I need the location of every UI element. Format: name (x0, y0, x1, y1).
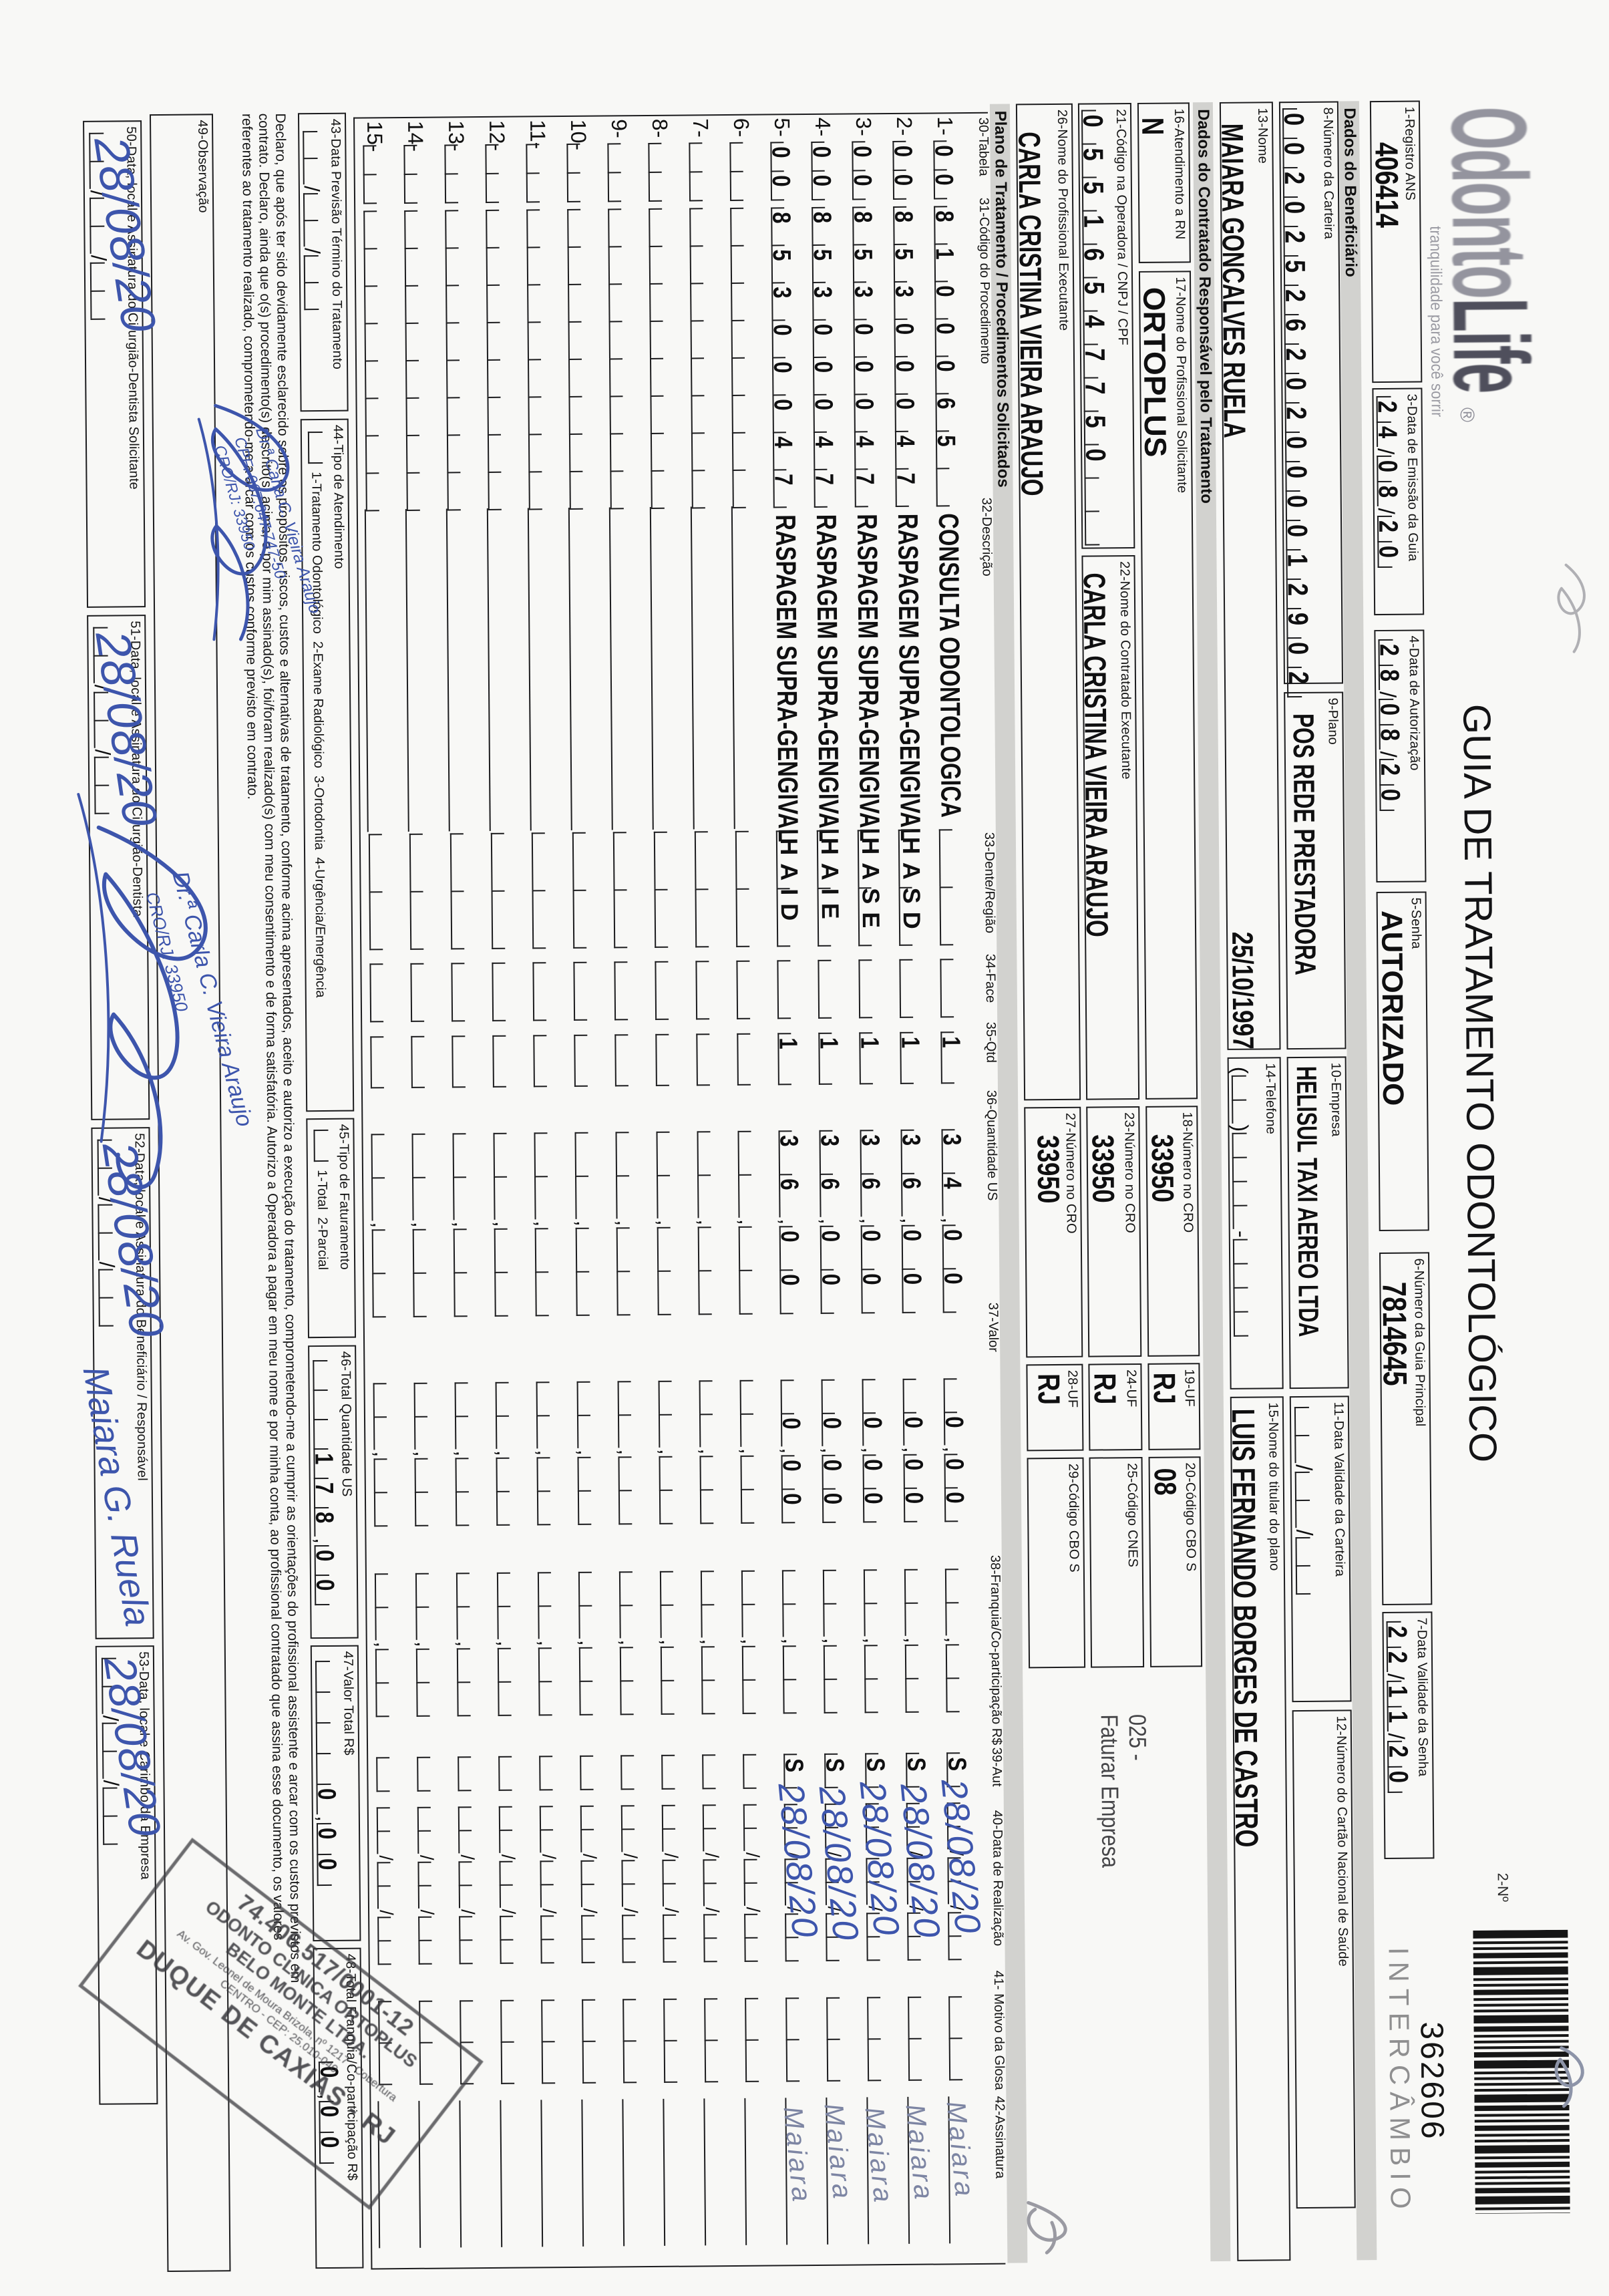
svg-text:Maiara: Maiara (778, 2105, 817, 2205)
svg-text:Maiara: Maiara (900, 2103, 939, 2203)
svg-text:28/08/20: 28/08/20 (85, 627, 167, 831)
svg-text:28/08/20: 28/08/20 (83, 132, 166, 337)
svg-text:Maiara: Maiara (860, 2106, 898, 2206)
svg-text:Maiara G. Ruela: Maiara G. Ruela (75, 1363, 158, 1629)
svg-text:Maiara: Maiara (940, 2100, 979, 2200)
svg-text:28/08/20: 28/08/20 (95, 1653, 171, 1841)
svg-text:Maiara: Maiara (819, 2102, 858, 2202)
svg-text:28/08/20: 28/08/20 (92, 1138, 174, 1342)
